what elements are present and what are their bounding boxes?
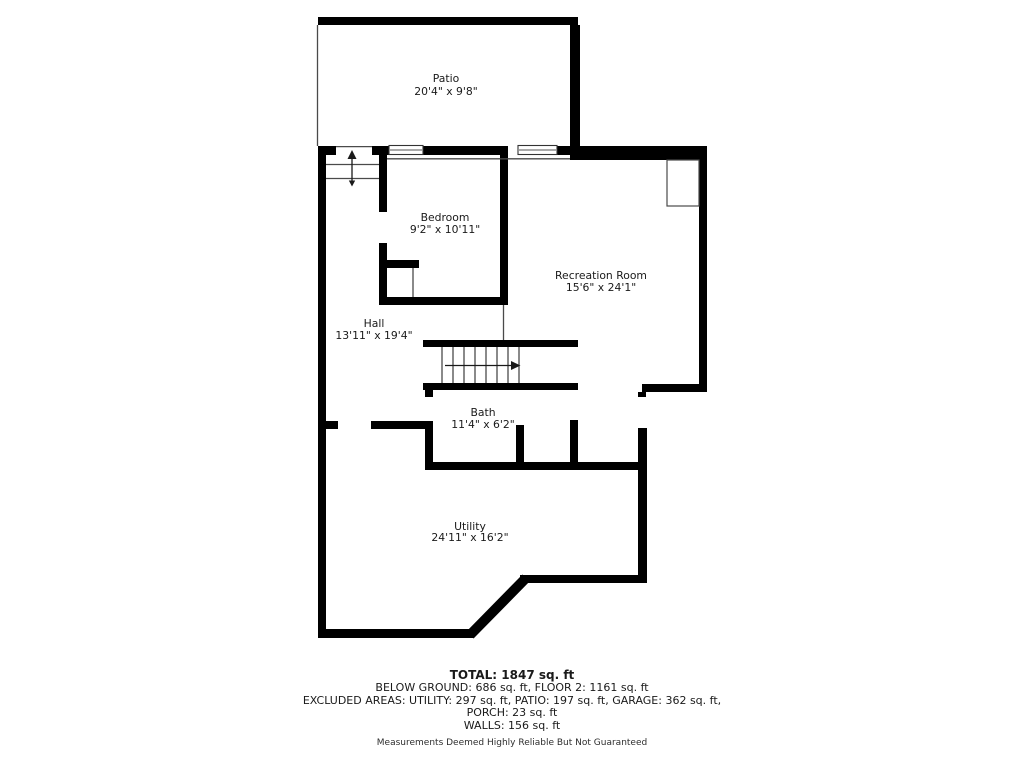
hall-divider-seg-a xyxy=(322,421,338,429)
top-wall-seg-b xyxy=(372,146,390,155)
summary-disclaimer: Measurements Deemed Highly Reliable But … xyxy=(0,738,1024,749)
stairs-top-wall xyxy=(423,340,578,347)
summary-excluded-2: PORCH: 23 sq. ft xyxy=(0,707,1024,720)
room-dim-utility: 24'11" x 16'2" xyxy=(431,531,508,544)
summary-walls: WALLS: 156 sq. ft xyxy=(0,720,1024,733)
bedroom-bottom-wall xyxy=(379,297,508,305)
stairs xyxy=(326,150,521,383)
top-wall-seg-d xyxy=(557,146,571,155)
utility-bottom-wall xyxy=(318,629,473,638)
recreation-top-wall xyxy=(570,146,707,160)
corridor-right-stub xyxy=(638,392,646,397)
bath-left-wall-stub xyxy=(425,390,433,397)
patio-top-wall xyxy=(318,17,578,25)
room-dim-bedroom: 9'2" x 10'11" xyxy=(410,223,480,236)
stairs-bottom-wall xyxy=(423,383,578,390)
left-exterior-wall xyxy=(318,146,326,638)
bedroom-right-wall xyxy=(500,155,508,305)
utility-lower-right-wall xyxy=(520,575,647,583)
bedroom-left-wall-upper xyxy=(379,155,387,212)
room-dim-recreation-room: 15'6" x 24'1" xyxy=(566,281,636,294)
room-dim-bath: 11'4" x 6'2" xyxy=(451,418,514,431)
bath-right-wall xyxy=(570,420,578,468)
utility-right-wall xyxy=(638,428,647,583)
hall-divider-seg-b xyxy=(371,421,433,429)
patio-right-wall xyxy=(570,25,580,146)
floor-plan-drawing: Patio 20'4" x 9'8" Bedroom 9'2" x 10'11"… xyxy=(0,0,1024,768)
floor-plan-page: Patio 20'4" x 9'8" Bedroom 9'2" x 10'11"… xyxy=(0,0,1024,768)
bath-bottom-wall xyxy=(425,462,647,470)
recreation-right-wall xyxy=(699,146,707,392)
room-dim-patio: 20'4" x 9'8" xyxy=(414,85,477,98)
summary-areas: BELOW GROUND: 686 sq. ft, FLOOR 2: 1161 … xyxy=(0,682,1024,695)
top-wall-seg-c xyxy=(423,146,508,155)
fireplace-box xyxy=(667,160,699,206)
room-label-patio: Patio xyxy=(433,72,460,85)
recreation-bottom-wall xyxy=(642,384,707,392)
room-dim-hall: 13'11" x 19'4" xyxy=(335,329,412,342)
room-labels: Patio 20'4" x 9'8" Bedroom 9'2" x 10'11"… xyxy=(335,72,647,544)
bath-divider-wall xyxy=(516,425,524,467)
interior-lines xyxy=(413,160,699,340)
stairs-direction-arrow-icon xyxy=(445,361,521,370)
utility-diagonal-wall xyxy=(470,578,526,635)
bedroom-left-wall-lower xyxy=(379,243,387,305)
area-summary: TOTAL: 1847 sq. ft BELOW GROUND: 686 sq.… xyxy=(0,669,1024,749)
stairs-up-arrow-icon xyxy=(348,150,357,187)
bedroom-closet-wall xyxy=(387,260,419,268)
